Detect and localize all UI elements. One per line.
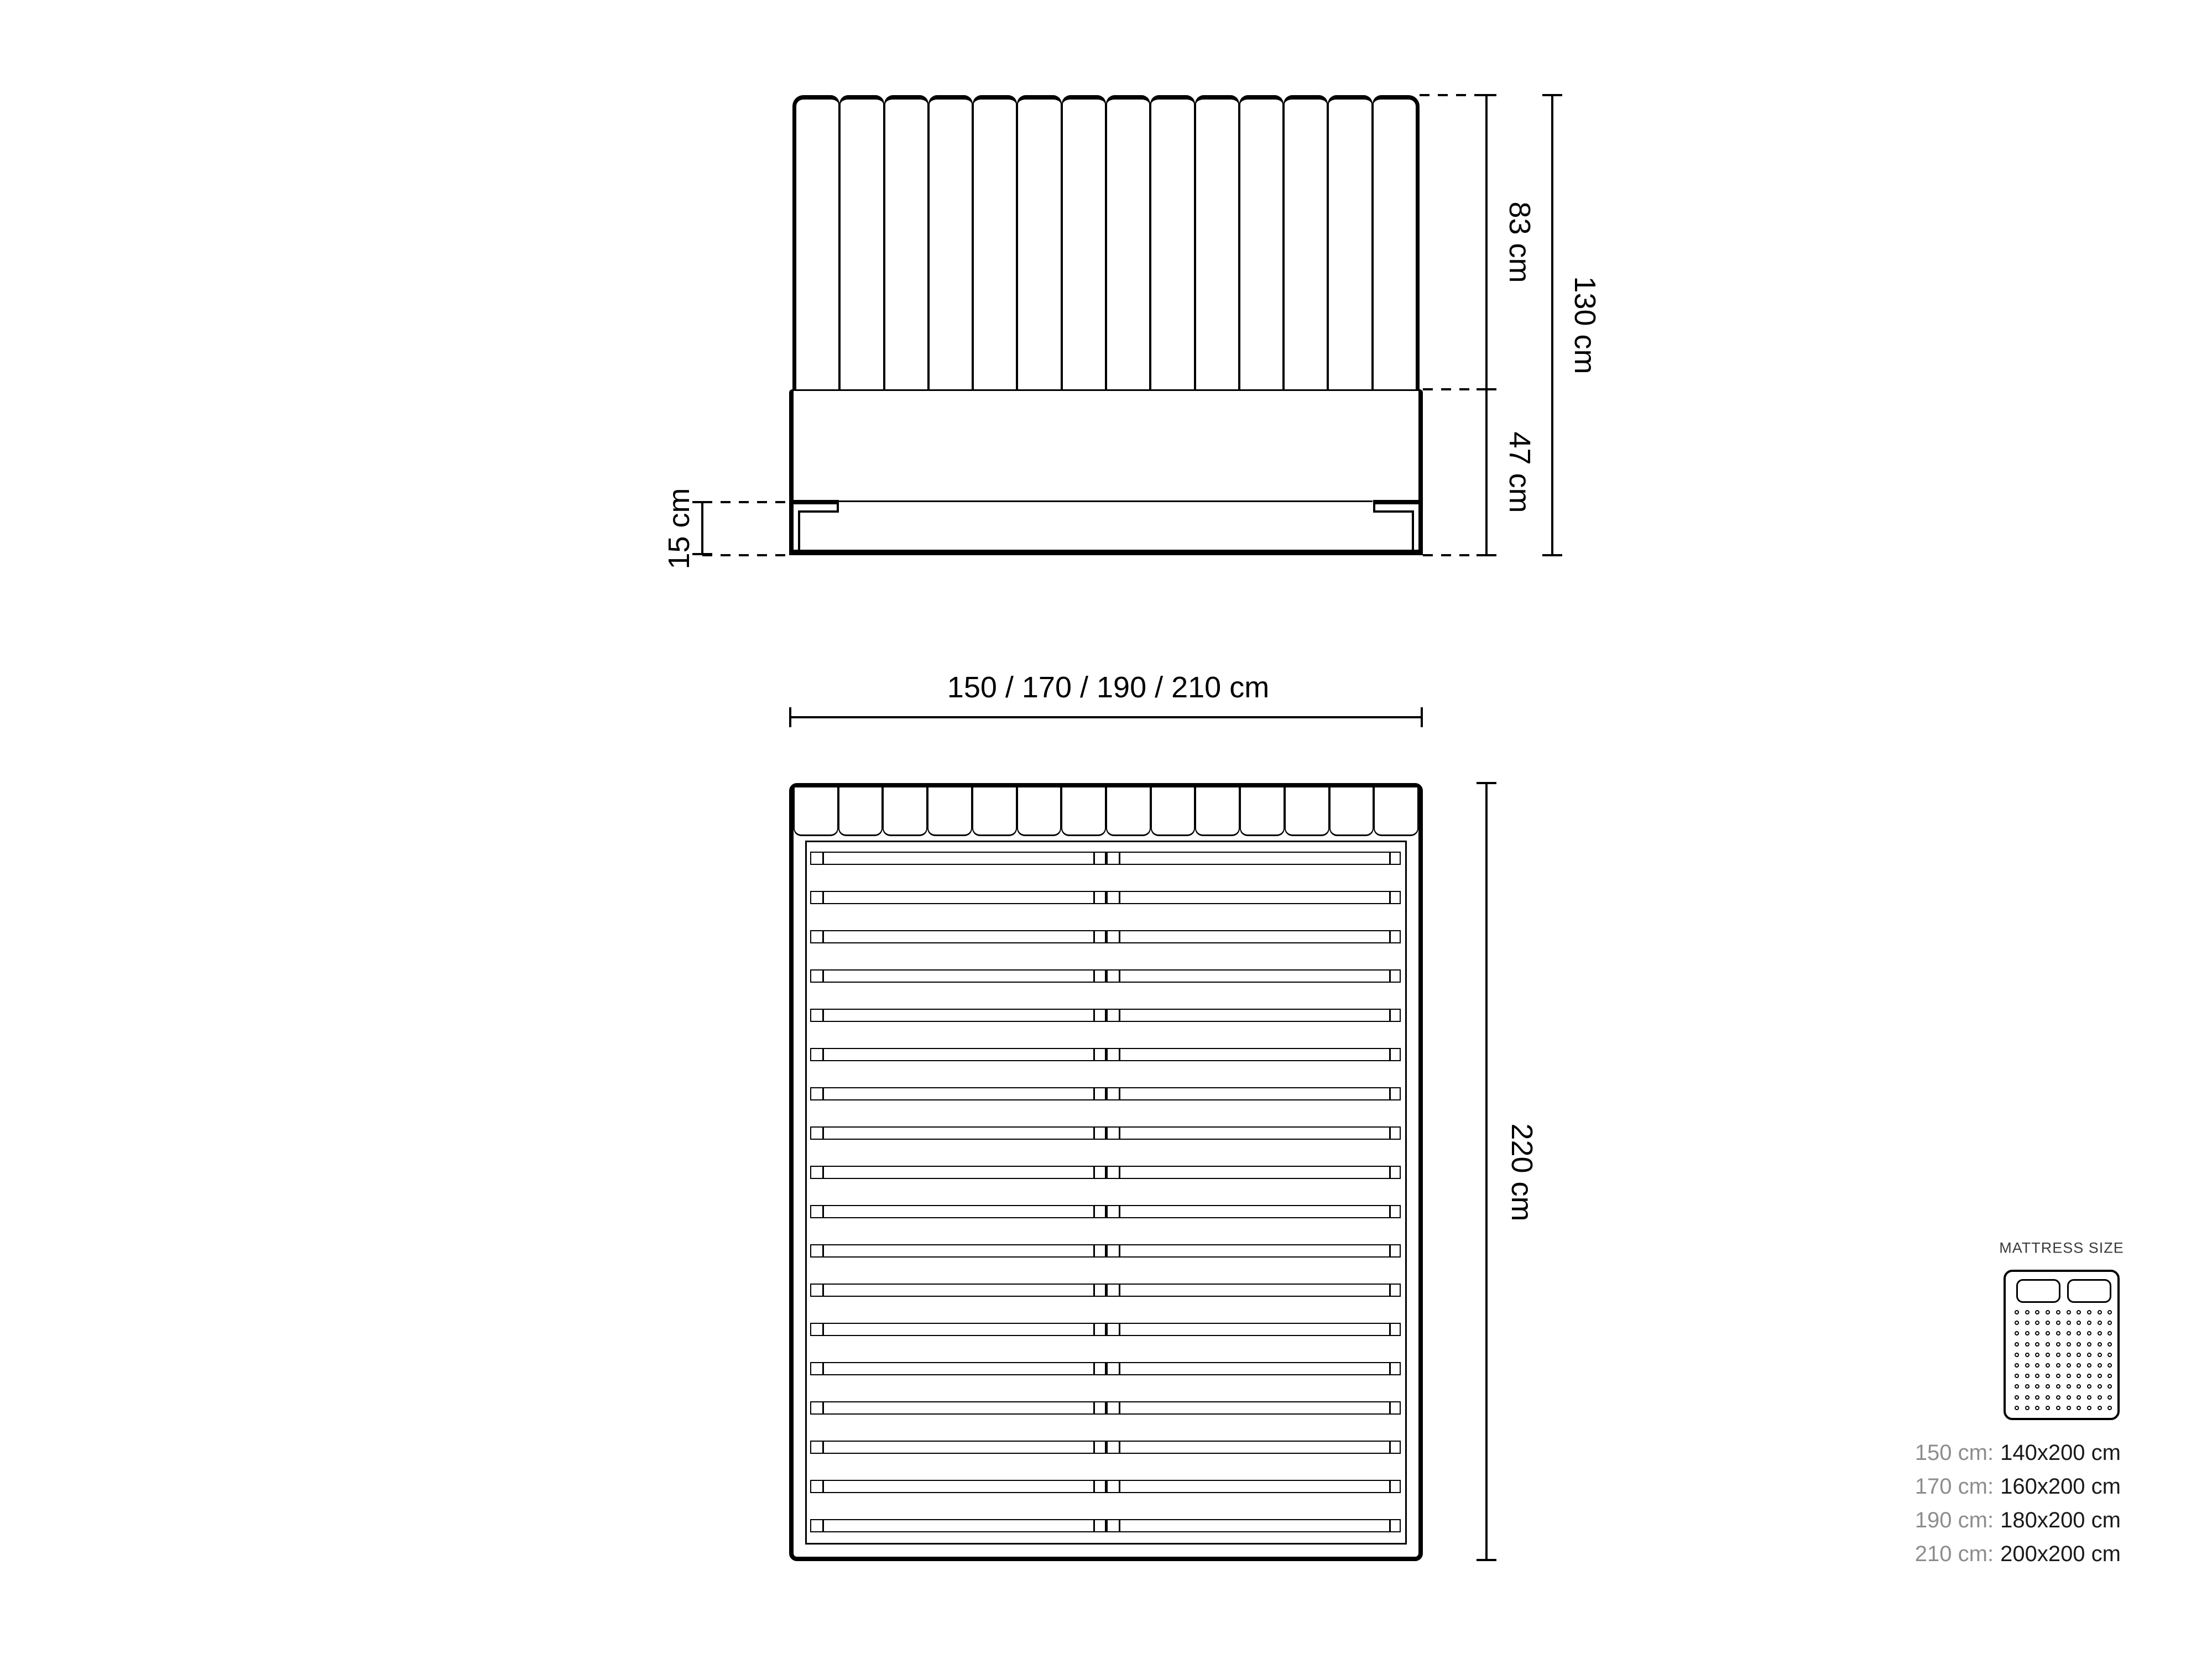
dot-icon	[2015, 1321, 2019, 1325]
front-base-bottom-line	[839, 500, 1373, 502]
slat-divider	[1105, 931, 1108, 942]
slat-divider	[822, 1245, 824, 1256]
slat-divider	[1093, 1206, 1095, 1217]
dot-icon	[2046, 1374, 2050, 1378]
plan-headboard-segment	[883, 787, 927, 836]
dot-icon	[2025, 1321, 2030, 1325]
slat-divider	[1389, 1167, 1391, 1178]
dim-label-leg-height: 15 cm	[662, 488, 696, 569]
slat	[810, 1166, 1401, 1179]
slat-divider	[1093, 1088, 1095, 1099]
plan-headboard-segment	[1329, 787, 1374, 836]
dot-icon	[2067, 1331, 2071, 1335]
slat-divider	[822, 1206, 824, 1217]
slat-divider	[1119, 931, 1120, 942]
dim-tick	[789, 707, 791, 727]
slat-divider	[1119, 1442, 1120, 1453]
dot-icon	[2077, 1353, 2081, 1357]
dot-icon	[2015, 1384, 2019, 1389]
slat-divider	[1105, 1402, 1108, 1413]
slat	[810, 1441, 1401, 1454]
slat-divider	[1119, 1245, 1120, 1256]
dot-icon	[2046, 1310, 2050, 1314]
pillow-icon	[2016, 1279, 2060, 1303]
slat-divider	[1105, 1363, 1108, 1374]
dot-icon	[2046, 1363, 2050, 1368]
slat-divider	[1105, 1206, 1108, 1217]
front-left-leg-bracket	[789, 500, 839, 504]
plan-headboard-segment	[1240, 787, 1285, 836]
headboard-channel	[1150, 95, 1194, 389]
slat-divider	[1105, 1010, 1108, 1021]
extension-line	[702, 501, 789, 503]
dim-line-width	[789, 716, 1423, 718]
dot-icon	[2025, 1374, 2030, 1378]
slat-divider	[822, 1128, 824, 1139]
slat-divider	[822, 1481, 824, 1492]
slat-divider	[822, 1010, 824, 1021]
slat	[810, 1087, 1401, 1100]
dot-icon	[2077, 1406, 2081, 1410]
slat-divider	[1389, 1049, 1391, 1060]
mattress-size-row: 190 cm:180x200 cm	[1825, 1504, 2121, 1537]
slat-divider	[822, 1167, 824, 1178]
bed-size-label: 210 cm:	[1915, 1542, 1994, 1566]
slat-divider	[1105, 1520, 1108, 1531]
plan-headboard-segment	[1106, 787, 1151, 836]
dot-icon	[2098, 1374, 2102, 1378]
dot-icon	[2046, 1406, 2050, 1410]
dot-icon	[2035, 1331, 2039, 1335]
dot-icon	[2015, 1363, 2019, 1368]
slat-divider	[1093, 1363, 1095, 1374]
slat-divider	[1119, 1088, 1120, 1099]
mattress-size-value: 180x200 cm	[2000, 1508, 2121, 1532]
slat-divider	[1119, 1520, 1120, 1531]
front-right-leg-bracket	[1373, 500, 1423, 504]
dot-icon	[2056, 1395, 2060, 1400]
headboard-channel	[1328, 95, 1372, 389]
slat-divider	[1093, 1442, 1095, 1453]
mattress-size-row: 210 cm:200x200 cm	[1825, 1537, 2121, 1571]
plan-headboard-segment	[794, 787, 838, 836]
dot-icon	[2067, 1384, 2071, 1389]
slat-divider	[1389, 931, 1391, 942]
dot-icon	[2077, 1374, 2081, 1378]
slat-divider	[1389, 971, 1391, 982]
slat-divider	[1105, 1049, 1108, 1060]
plan-headboard-segment	[1374, 787, 1418, 836]
dot-icon	[2107, 1395, 2112, 1400]
headboard-channel	[928, 95, 973, 389]
slat	[810, 852, 1401, 865]
dot-icon	[2077, 1342, 2081, 1347]
slat-divider	[822, 892, 824, 903]
slat-divider	[1389, 1245, 1391, 1256]
dot-icon	[2035, 1363, 2039, 1368]
slat	[810, 930, 1401, 943]
slat-divider	[1093, 1402, 1095, 1413]
dot-icon	[2025, 1406, 2030, 1410]
dot-icon	[2035, 1395, 2039, 1400]
dim-line-220	[1485, 783, 1488, 1561]
dot-icon	[2107, 1363, 2112, 1368]
dot-icon	[2035, 1321, 2039, 1325]
mattress-size-table: 150 cm:140x200 cm170 cm:160x200 cm190 cm…	[1825, 1436, 2121, 1571]
dot-icon	[2067, 1342, 2071, 1347]
dot-icon	[2046, 1395, 2050, 1400]
slat-divider	[1093, 931, 1095, 942]
headboard-channel	[839, 95, 884, 389]
slat-divider	[822, 853, 824, 864]
dot-icon	[2015, 1374, 2019, 1378]
dot-icon	[2077, 1310, 2081, 1314]
slat-divider	[1105, 892, 1108, 903]
dot-icon	[2046, 1353, 2050, 1357]
dim-tick	[1477, 388, 1496, 390]
dot-icon	[2015, 1342, 2019, 1347]
dot-icon	[2046, 1384, 2050, 1389]
slat-divider	[1105, 1245, 1108, 1256]
slat-divider	[1389, 1128, 1391, 1139]
slat-divider	[1105, 1442, 1108, 1453]
slat-divider	[1119, 1206, 1120, 1217]
dot-icon	[2107, 1310, 2112, 1314]
slat-divider	[1119, 892, 1120, 903]
dim-label-total-height: 130 cm	[1568, 276, 1602, 374]
dim-label-base-height: 47 cm	[1503, 431, 1537, 513]
mattress-size-value: 160x200 cm	[2000, 1474, 2121, 1499]
dot-icon	[2025, 1363, 2030, 1368]
front-left-leg	[798, 510, 800, 555]
dot-icon	[2107, 1374, 2112, 1378]
slat	[810, 1362, 1401, 1375]
headboard-channel	[1373, 95, 1420, 389]
dot-icon	[2107, 1353, 2112, 1357]
dot-icon	[2015, 1331, 2019, 1335]
dim-label-length: 220 cm	[1505, 1123, 1539, 1221]
dim-tick	[1542, 554, 1562, 556]
dot-icon	[2087, 1342, 2091, 1347]
slat-divider	[1389, 1010, 1391, 1021]
dot-icon	[2035, 1384, 2039, 1389]
slat	[810, 1480, 1401, 1493]
slat-divider	[1119, 1324, 1120, 1335]
dot-icon	[2077, 1331, 2081, 1335]
bed-size-label: 190 cm:	[1915, 1508, 1994, 1532]
dot-icon	[2015, 1395, 2019, 1400]
slat-divider	[1119, 971, 1120, 982]
dot-icon	[2035, 1342, 2039, 1347]
dot-icon	[2087, 1395, 2091, 1400]
dot-icon	[2077, 1363, 2081, 1368]
dot-icon	[2015, 1406, 2019, 1410]
dot-icon	[2087, 1374, 2091, 1378]
slat	[810, 1205, 1401, 1218]
slat-divider	[822, 1088, 824, 1099]
dot-icon	[2015, 1310, 2019, 1314]
dot-icon	[2025, 1395, 2030, 1400]
dot-icon	[2067, 1321, 2071, 1325]
dot-icon	[2067, 1374, 2071, 1378]
dot-icon	[2025, 1310, 2030, 1314]
plan-headboard-segment	[927, 787, 972, 836]
headboard-channel	[1062, 95, 1106, 389]
dot-icon	[2025, 1353, 2030, 1357]
slat-divider	[1093, 853, 1095, 864]
dot-icon	[2098, 1342, 2102, 1347]
slat-divider	[1093, 1481, 1095, 1492]
headboard-channel	[1017, 95, 1061, 389]
dot-icon	[2046, 1342, 2050, 1347]
headboard-channel	[1239, 95, 1284, 389]
dot-icon	[2107, 1384, 2112, 1389]
dot-icon	[2098, 1363, 2102, 1368]
plan-headboard-segment	[1285, 787, 1329, 836]
slat-divider	[1093, 1049, 1095, 1060]
slat	[810, 1401, 1401, 1415]
slat	[810, 1323, 1401, 1336]
slat-divider	[1389, 1402, 1391, 1413]
bed-size-label: 170 cm:	[1915, 1474, 1994, 1499]
slat-divider	[1389, 1363, 1391, 1374]
slat-divider	[1119, 1167, 1120, 1178]
dot-icon	[2098, 1395, 2102, 1400]
slat-divider	[1119, 1363, 1120, 1374]
slat-divider	[1119, 853, 1120, 864]
slat	[810, 1009, 1401, 1022]
dot-icon	[2056, 1310, 2060, 1314]
slat-divider	[1389, 1285, 1391, 1296]
dot-icon	[2056, 1384, 2060, 1389]
headboard-channel	[884, 95, 928, 389]
front-base	[789, 389, 1423, 555]
dot-icon	[2087, 1310, 2091, 1314]
slat-divider	[1093, 892, 1095, 903]
slat-divider	[1105, 1128, 1108, 1139]
dot-icon	[2107, 1342, 2112, 1347]
slat-divider	[1093, 1324, 1095, 1335]
dot-icon	[2025, 1342, 2030, 1347]
plan-headboard-band	[794, 787, 1418, 836]
extension-line	[702, 554, 789, 556]
dot-icon	[2087, 1353, 2091, 1357]
dot-icon	[2077, 1384, 2081, 1389]
slat-divider	[1119, 1128, 1120, 1139]
dot-icon	[2087, 1406, 2091, 1410]
dim-tick	[1477, 94, 1496, 96]
slat-divider	[1093, 971, 1095, 982]
dim-label-headboard-height: 83 cm	[1503, 201, 1537, 283]
headboard-channel	[792, 95, 839, 389]
dot-icon	[2067, 1353, 2071, 1357]
mattress-size-row: 170 cm:160x200 cm	[1825, 1470, 2121, 1504]
slat-divider	[1093, 1167, 1095, 1178]
slat-divider	[1389, 853, 1391, 864]
dot-icon	[2067, 1310, 2071, 1314]
mattress-size-row: 150 cm:140x200 cm	[1825, 1436, 2121, 1470]
dot-icon	[2098, 1406, 2102, 1410]
dot-icon	[2067, 1363, 2071, 1368]
dim-tick	[1477, 1559, 1496, 1561]
slat-divider	[1093, 1285, 1095, 1296]
dim-line-15	[701, 502, 703, 555]
slat-divider	[822, 971, 824, 982]
slat-divider	[822, 1442, 824, 1453]
slat-divider	[1093, 1128, 1095, 1139]
slat	[810, 1244, 1401, 1258]
slat	[810, 1126, 1401, 1140]
mattress-size-value: 200x200 cm	[2000, 1542, 2121, 1566]
dot-icon	[2067, 1395, 2071, 1400]
slat-divider	[1105, 971, 1108, 982]
slat-divider	[822, 1520, 824, 1531]
plan-headboard-segment	[972, 787, 1017, 836]
headboard-channel	[1195, 95, 1239, 389]
legend-title: MATTRESS SIZE	[1999, 1240, 2124, 1257]
dot-icon	[2056, 1374, 2060, 1378]
front-headboard	[792, 95, 1420, 389]
dim-tick	[1477, 782, 1496, 784]
dot-icon	[2098, 1321, 2102, 1325]
slat	[810, 1048, 1401, 1061]
dim-tick	[1542, 94, 1562, 96]
slat-divider	[1093, 1245, 1095, 1256]
slat-divider	[1389, 1442, 1391, 1453]
slat-divider	[822, 931, 824, 942]
plan-headboard-segment	[1195, 787, 1240, 836]
plan-headboard-segment	[1151, 787, 1196, 836]
front-right-leg-bracket	[1373, 510, 1414, 513]
dot-icon	[2098, 1353, 2102, 1357]
slat-divider	[822, 1049, 824, 1060]
slat-divider	[1119, 1049, 1120, 1060]
slat-divider	[822, 1285, 824, 1296]
dot-icon	[2015, 1353, 2019, 1357]
slat-divider	[1119, 1481, 1120, 1492]
plan-headboard-segment	[1017, 787, 1062, 836]
slat-divider	[1119, 1402, 1120, 1413]
dot-icon	[2056, 1353, 2060, 1357]
plan-headboard-segment	[1061, 787, 1106, 836]
dot-icon	[2077, 1395, 2081, 1400]
plan-inner-frame	[805, 841, 1407, 1545]
dot-icon	[2098, 1310, 2102, 1314]
dim-line-83-47	[1485, 95, 1488, 555]
slat	[810, 891, 1401, 904]
slat	[810, 969, 1401, 983]
dot-icon	[2035, 1374, 2039, 1378]
headboard-channel	[1284, 95, 1328, 389]
bed-dimension-diagram: 83 cm 47 cm 130 cm 15 cm 150 / 170 / 190…	[0, 0, 2212, 1659]
dim-line-130	[1551, 95, 1553, 555]
dot-icon	[2077, 1321, 2081, 1325]
dot-icon	[2056, 1331, 2060, 1335]
dot-icon	[2035, 1353, 2039, 1357]
mattress-size-value: 140x200 cm	[2000, 1441, 2121, 1465]
slat-divider	[1105, 1481, 1108, 1492]
dot-icon	[2087, 1321, 2091, 1325]
dim-tick	[1477, 554, 1496, 556]
slat-divider	[1105, 1088, 1108, 1099]
slat-divider	[1119, 1010, 1120, 1021]
slat	[810, 1519, 1401, 1532]
dot-icon	[2056, 1321, 2060, 1325]
dot-icon	[2025, 1331, 2030, 1335]
dot-icon	[2046, 1331, 2050, 1335]
slat-divider	[1105, 1324, 1108, 1335]
headboard-channel	[973, 95, 1017, 389]
dot-icon	[2107, 1331, 2112, 1335]
slat-divider	[1105, 1167, 1108, 1178]
slat-divider	[1105, 853, 1108, 864]
dim-label-width-options: 150 / 170 / 190 / 210 cm	[947, 670, 1269, 705]
dot-icon	[2067, 1406, 2071, 1410]
slat-divider	[1093, 1010, 1095, 1021]
front-right-leg	[1412, 510, 1414, 555]
slat-divider	[1389, 1520, 1391, 1531]
slat-divider	[1389, 1481, 1391, 1492]
dot-icon	[2087, 1363, 2091, 1368]
dot-icon	[2025, 1384, 2030, 1389]
dot-icon	[2107, 1406, 2112, 1410]
slat-divider	[822, 1324, 824, 1335]
headboard-channel	[1106, 95, 1150, 389]
dot-icon	[2087, 1384, 2091, 1389]
dot-icon	[2087, 1331, 2091, 1335]
dot-icon	[2035, 1310, 2039, 1314]
dot-icon	[2046, 1321, 2050, 1325]
slat-divider	[822, 1402, 824, 1413]
dim-tick	[1421, 707, 1423, 727]
slat-divider	[1105, 1285, 1108, 1296]
slat-divider	[1389, 1206, 1391, 1217]
dot-icon	[2107, 1321, 2112, 1325]
slat-divider	[1389, 1324, 1391, 1335]
plan-headboard-segment	[838, 787, 883, 836]
slat-divider	[1389, 892, 1391, 903]
dot-icon	[2098, 1331, 2102, 1335]
slat	[810, 1284, 1401, 1297]
dot-icon	[2056, 1363, 2060, 1368]
slat-divider	[1389, 1088, 1391, 1099]
mattress-icon	[2004, 1270, 2120, 1420]
dot-icon	[2056, 1406, 2060, 1410]
bed-size-label: 150 cm:	[1915, 1441, 1994, 1465]
dot-icon	[2098, 1384, 2102, 1389]
pillow-icon	[2067, 1279, 2111, 1303]
dot-icon	[2035, 1406, 2039, 1410]
slat-divider	[822, 1363, 824, 1374]
front-left-leg-bracket	[798, 510, 839, 513]
slat-divider	[1093, 1520, 1095, 1531]
dot-icon	[2056, 1342, 2060, 1347]
slat-divider	[1119, 1285, 1120, 1296]
